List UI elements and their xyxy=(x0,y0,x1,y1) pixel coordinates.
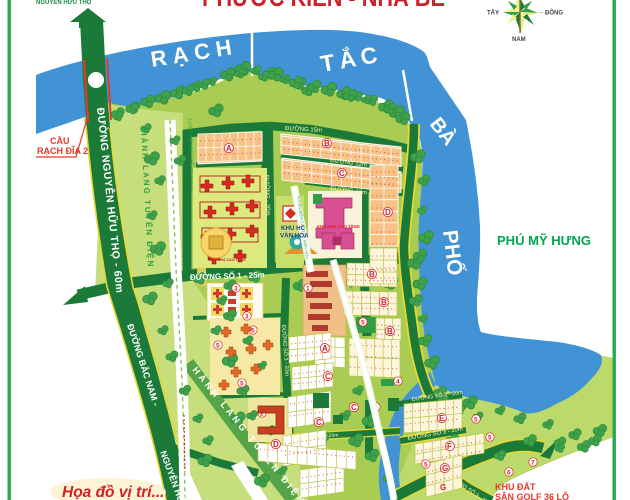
svg-text:PHƯỚC KIỂN - NHÀ BÈ: PHƯỚC KIỂN - NHÀ BÈ xyxy=(202,0,445,12)
svg-text:D: D xyxy=(385,208,391,217)
svg-text:3: 3 xyxy=(245,313,249,320)
svg-text:VĂN HÓA: VĂN HÓA xyxy=(280,232,309,240)
svg-text:A: A xyxy=(322,344,328,353)
svg-text:5: 5 xyxy=(216,342,220,349)
svg-text:B: B xyxy=(324,139,330,148)
svg-text:·-: ·- xyxy=(539,11,543,17)
svg-text:-·: -· xyxy=(496,11,500,17)
svg-text:Họa đồ vị trí...: Họa đồ vị trí... xyxy=(62,484,164,500)
svg-text:C: C xyxy=(339,169,345,178)
svg-text:5: 5 xyxy=(474,416,478,423)
svg-text:C: C xyxy=(316,418,322,427)
svg-text:5: 5 xyxy=(361,319,365,326)
svg-text:C: C xyxy=(351,403,357,412)
svg-text:C: C xyxy=(325,372,331,381)
svg-text:5: 5 xyxy=(240,380,244,387)
svg-text:5: 5 xyxy=(488,434,492,441)
svg-text:D: D xyxy=(273,440,279,449)
svg-text:A: A xyxy=(226,144,232,153)
svg-text:NAM: NAM xyxy=(512,37,526,43)
svg-text:KHU ĐẤT: KHU ĐẤT xyxy=(495,482,536,492)
svg-text:F: F xyxy=(447,442,452,451)
svg-text:B: B xyxy=(381,298,387,307)
svg-text:3: 3 xyxy=(234,285,238,292)
svg-text:NGUYỄN HỮU THỌ: NGUYỄN HỮU THỌ xyxy=(36,0,92,6)
svg-text:KHU NHÀ CAO TẦNG: KHU NHÀ CAO TẦNG xyxy=(317,224,360,229)
svg-text:4: 4 xyxy=(396,378,400,385)
svg-text:5: 5 xyxy=(251,327,255,334)
svg-text:ĐÔNG: ĐÔNG xyxy=(545,9,563,17)
svg-text:SÂN GOLF 36 LỖ: SÂN GOLF 36 LỖ xyxy=(495,491,569,500)
svg-text:6: 6 xyxy=(507,469,511,476)
svg-text:KHU HC: KHU HC xyxy=(281,225,306,232)
svg-text:G: G xyxy=(440,483,446,492)
svg-text:G: G xyxy=(442,464,448,473)
svg-text:E: E xyxy=(439,414,445,423)
svg-text:CẦU: CẦU xyxy=(50,136,70,146)
svg-text:ĐƯỜNG - 20m: ĐƯỜNG - 20m xyxy=(263,175,271,216)
svg-text:1: 1 xyxy=(306,285,310,292)
svg-text:5: 5 xyxy=(424,461,428,468)
svg-text:7: 7 xyxy=(531,459,535,466)
svg-text:PHÚ MỸ HƯNG: PHÚ MỸ HƯNG xyxy=(497,233,591,248)
svg-text:RẠCH ĐĨA 2: RẠCH ĐĨA 2 xyxy=(37,146,88,156)
